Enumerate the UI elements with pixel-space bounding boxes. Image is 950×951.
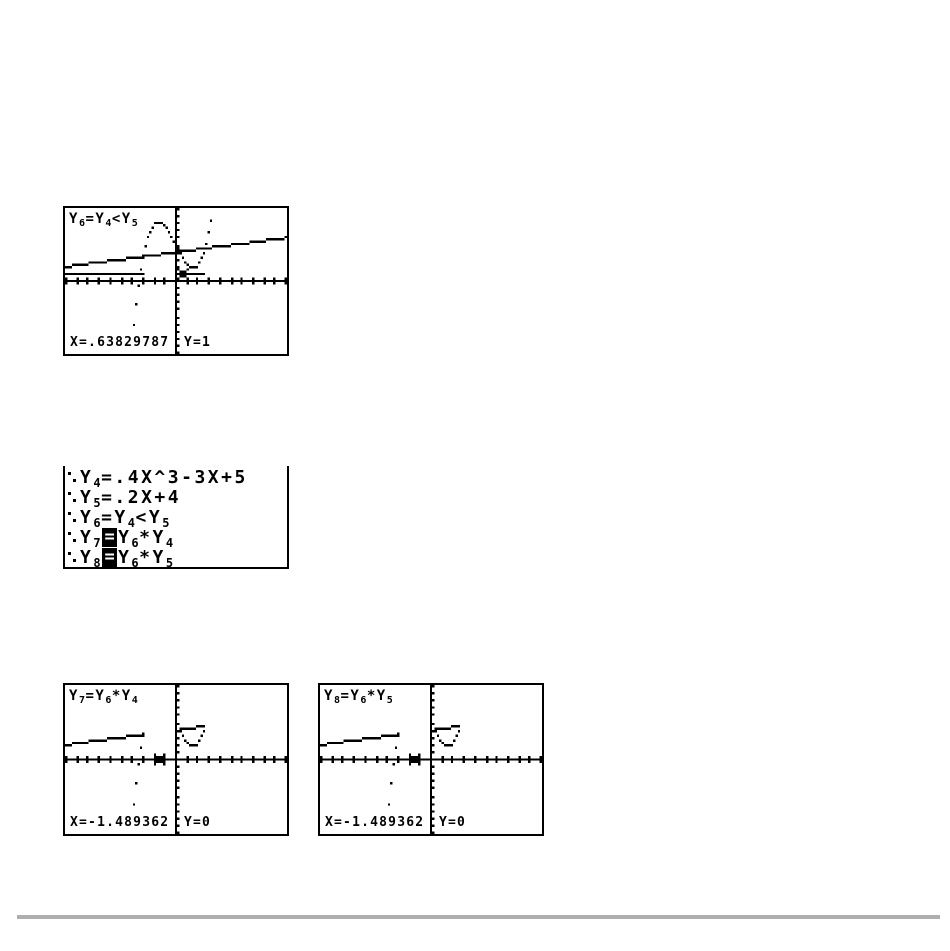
- graph3-x-readout: X=-1.489362: [323, 812, 428, 832]
- yequals-line-y4: Y4=.4X^3-3X+5: [65, 468, 287, 488]
- calculator-yequals-editor-screen: Y4=.4X^3-3X+5Y5=.2X+4Y6=Y4<Y5Y7=Y6*Y4Y8=…: [63, 466, 289, 569]
- equals-sign: =: [101, 488, 114, 507]
- function-name: Y4: [80, 468, 101, 487]
- yequals-line-list: Y4=.4X^3-3X+5Y5=.2X+4Y6=Y4<Y5Y7=Y6*Y4Y8=…: [65, 466, 287, 567]
- function-name: Y5: [80, 488, 101, 507]
- dot-style-icon: [65, 488, 80, 507]
- equals-sign: =: [101, 508, 114, 527]
- function-name: Y8: [80, 548, 101, 567]
- function-name: Y6: [80, 508, 101, 527]
- graph2-x-readout: X=-1.489362: [68, 812, 173, 832]
- page-root: { "page": { "background": "#ffffff", "in…: [0, 0, 950, 951]
- equals-selected-highlight: =: [102, 528, 117, 547]
- dot-style-icon: [65, 468, 80, 487]
- dot-style-icon: [65, 548, 80, 567]
- yequals-line-y8: Y8=Y6*Y5: [65, 548, 287, 568]
- function-expression: .4X^3-3X+5: [114, 468, 247, 487]
- graph1-trace-equation: Y6=Y4<Y5: [67, 210, 142, 229]
- dot-style-icon: [65, 508, 80, 527]
- yequals-line-y7: Y7=Y6*Y4: [65, 528, 287, 548]
- graph1-y-readout: Y=1: [182, 332, 215, 352]
- function-expression: Y4<Y5: [114, 508, 170, 527]
- equals-sign: =: [101, 468, 114, 487]
- calculator-graph-screen-y8: Y8=Y6*Y5 X=-1.489362 Y=0: [318, 683, 544, 836]
- equals-selected-highlight: =: [102, 548, 117, 567]
- graph3-y-readout: Y=0: [437, 812, 470, 832]
- function-expression: .2X+4: [114, 488, 181, 507]
- yequals-line-y6: Y6=Y4<Y5: [65, 508, 287, 528]
- dot-style-icon: [65, 528, 80, 547]
- calculator-graph-screen-y7: Y7=Y6*Y4 X=-1.489362 Y=0: [63, 683, 289, 836]
- graph3-trace-equation: Y8=Y6*Y5: [322, 687, 397, 706]
- graph1-x-readout: X=.63829787: [68, 332, 173, 352]
- function-expression: Y6*Y5: [118, 548, 174, 567]
- yequals-line-y5: Y5=.2X+4: [65, 488, 287, 508]
- calculator-graph-screen-y6: Y6=Y4<Y5 X=.63829787 Y=1: [63, 206, 289, 356]
- graph2-y-readout: Y=0: [182, 812, 215, 832]
- function-expression: Y6*Y4: [118, 528, 174, 547]
- graph2-trace-equation: Y7=Y6*Y4: [67, 687, 142, 706]
- section-divider: [17, 915, 940, 919]
- function-name: Y7: [80, 528, 101, 547]
